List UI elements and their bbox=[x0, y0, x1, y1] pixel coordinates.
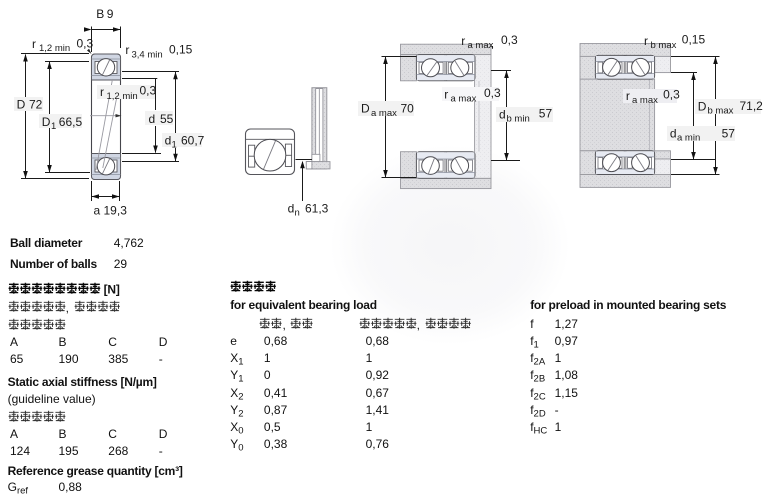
svg-text:b min: b min bbox=[507, 114, 530, 125]
svg-text:r: r bbox=[461, 34, 465, 48]
svg-text:B: B bbox=[96, 7, 104, 21]
svg-text:r: r bbox=[32, 37, 36, 51]
svg-text:66,5: 66,5 bbox=[59, 115, 83, 129]
svg-text:55: 55 bbox=[160, 112, 174, 126]
svg-text:a max: a max bbox=[371, 108, 397, 119]
svg-text:0,15: 0,15 bbox=[169, 43, 193, 57]
svg-text:57: 57 bbox=[539, 107, 553, 121]
svg-text:D: D bbox=[17, 98, 26, 112]
svg-text:n: n bbox=[295, 208, 300, 219]
svg-text:D: D bbox=[42, 115, 51, 129]
svg-text:a max: a max bbox=[632, 95, 658, 106]
svg-text:1: 1 bbox=[51, 121, 56, 132]
svg-text:57: 57 bbox=[722, 127, 736, 141]
svg-text:61,3: 61,3 bbox=[305, 202, 329, 216]
svg-text:3,4 min: 3,4 min bbox=[132, 50, 163, 61]
svg-text:D: D bbox=[698, 100, 707, 114]
svg-text:r: r bbox=[626, 89, 630, 103]
svg-text:1: 1 bbox=[172, 140, 177, 151]
svg-text:72: 72 bbox=[29, 98, 43, 112]
svg-text:r: r bbox=[100, 85, 104, 99]
svg-text:71,2: 71,2 bbox=[740, 99, 764, 113]
svg-text:0,3: 0,3 bbox=[484, 86, 501, 100]
svg-text:70: 70 bbox=[401, 102, 415, 116]
svg-text:a max: a max bbox=[451, 94, 477, 105]
svg-text:9: 9 bbox=[107, 7, 114, 21]
svg-text:b max: b max bbox=[651, 40, 677, 51]
svg-text:b max: b max bbox=[708, 106, 734, 117]
svg-text:a max: a max bbox=[468, 40, 494, 51]
svg-text:d: d bbox=[165, 134, 172, 148]
svg-text:r: r bbox=[125, 43, 129, 57]
svg-text:0,3: 0,3 bbox=[140, 84, 157, 98]
svg-text:0,3: 0,3 bbox=[77, 37, 94, 51]
svg-text:0,15: 0,15 bbox=[682, 33, 706, 47]
svg-text:d: d bbox=[288, 202, 295, 216]
svg-text:d: d bbox=[149, 112, 156, 126]
svg-text:r: r bbox=[644, 34, 648, 48]
svg-text:D: D bbox=[361, 102, 370, 116]
svg-text:a min: a min bbox=[677, 133, 700, 144]
svg-text:d: d bbox=[499, 108, 506, 122]
svg-text:1,2 min: 1,2 min bbox=[107, 91, 138, 102]
svg-text:60,7: 60,7 bbox=[181, 134, 205, 148]
svg-text:a 19,3: a 19,3 bbox=[94, 204, 128, 218]
svg-text:d: d bbox=[670, 127, 677, 141]
svg-text:1,2 min: 1,2 min bbox=[39, 43, 70, 54]
svg-text:r: r bbox=[444, 88, 448, 102]
svg-text:0,3: 0,3 bbox=[501, 33, 518, 47]
svg-text:0,3: 0,3 bbox=[663, 88, 680, 102]
